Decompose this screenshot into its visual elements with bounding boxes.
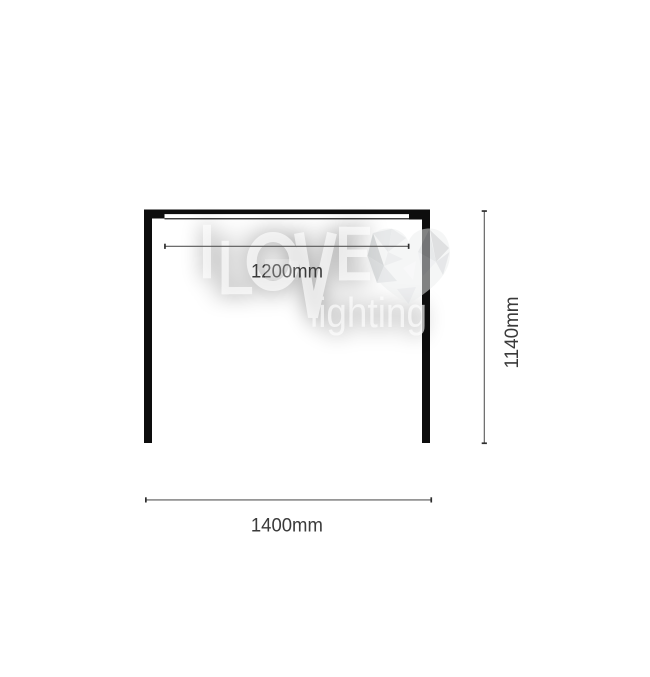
- svg-text:1400mm: 1400mm: [251, 515, 323, 537]
- svg-text:1140mm: 1140mm: [501, 297, 523, 369]
- svg-text:lighting: lighting: [310, 289, 427, 336]
